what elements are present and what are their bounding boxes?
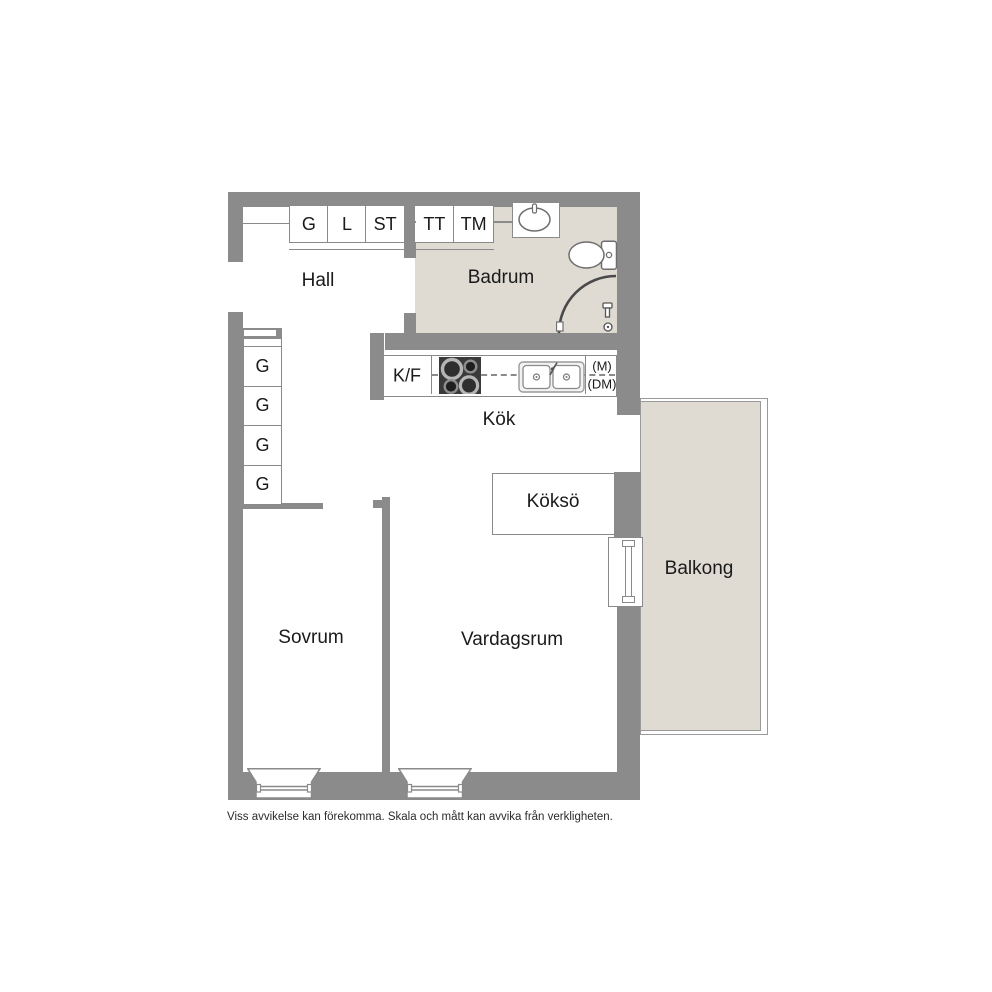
wall-sovrum-vardagsrum xyxy=(382,497,390,773)
closet-frontline-tttm xyxy=(414,249,494,250)
stove-icon xyxy=(439,357,481,394)
closet-l-label: L xyxy=(342,214,352,235)
wardrobe-g1: G xyxy=(244,347,281,387)
room-label-badrum: Badrum xyxy=(468,267,535,289)
wardrobe-g4: G xyxy=(244,466,281,505)
disclaimer-text: Viss avvikelse kan förekomma. Skala och … xyxy=(227,811,613,823)
m-label: (M) xyxy=(592,359,612,374)
wall-right-upper xyxy=(617,192,640,415)
wardrobe-g3: G xyxy=(244,426,281,466)
wardrobe-strip xyxy=(244,339,281,347)
kitchen-divider-m xyxy=(585,356,586,394)
bathroom-sink-icon xyxy=(513,203,556,234)
wardrobe-column: G G G G xyxy=(243,338,282,505)
floor-plan: G L ST TT TM K/F xyxy=(0,0,992,992)
closet-tm-label: TM xyxy=(461,214,487,235)
balcony-door-cap-top xyxy=(622,540,635,547)
hall-shelf-line xyxy=(243,223,290,224)
room-label-kokso: Köksö xyxy=(527,491,580,513)
wardrobe-g2-label: G xyxy=(255,395,269,416)
room-label-vardagsrum: Vardagsrum xyxy=(461,629,563,651)
tick-left-tt xyxy=(407,221,416,223)
closet-g-label: G xyxy=(302,214,316,235)
wall-left-upper xyxy=(228,192,243,262)
wardrobe-g4-label: G xyxy=(255,474,269,495)
closet-tt-label: TT xyxy=(423,214,445,235)
wall-right-lower xyxy=(617,605,640,800)
closet-tm: TM xyxy=(453,205,494,243)
kf-label: K/F xyxy=(393,366,421,387)
sovrum-window-icon xyxy=(247,768,321,799)
wall-badrum-south xyxy=(385,333,640,350)
closet-g: G xyxy=(289,205,329,243)
shower-icon xyxy=(556,272,618,334)
wardrobe-g1-label: G xyxy=(255,356,269,377)
vardagsrum-window-icon xyxy=(398,768,472,799)
tick-right-tm xyxy=(494,221,512,223)
niche-inner xyxy=(244,330,276,336)
wall-left-lower xyxy=(228,312,243,800)
bathroom-sink-box xyxy=(512,202,560,238)
wardrobe-g3-label: G xyxy=(255,435,269,456)
balcony-door-cap-bottom xyxy=(622,596,635,603)
closet-frontline-glst xyxy=(289,249,404,250)
room-label-sovrum: Sovrum xyxy=(278,627,343,649)
kitchen-divider-kf xyxy=(431,356,432,394)
closet-row-tttm: TT TM xyxy=(414,205,494,243)
closet-tt: TT xyxy=(414,205,455,243)
toilet-icon xyxy=(568,240,618,271)
room-label-kok: Kök xyxy=(483,409,516,431)
kitchen-sink-icon xyxy=(518,361,585,393)
closet-st-label: ST xyxy=(374,214,397,235)
dm-label: (DM) xyxy=(588,377,617,392)
closet-l: L xyxy=(327,205,367,243)
wall-kitchen-stub xyxy=(370,333,384,400)
closet-st: ST xyxy=(365,205,405,243)
room-label-hall: Hall xyxy=(302,270,335,292)
balcony-door-panel xyxy=(625,542,632,600)
closet-row-glst: G L ST xyxy=(289,205,405,243)
wardrobe-g2: G xyxy=(244,387,281,427)
balcony-door xyxy=(608,537,643,607)
wall-right-mid xyxy=(614,472,641,537)
room-label-balkong: Balkong xyxy=(665,558,734,580)
